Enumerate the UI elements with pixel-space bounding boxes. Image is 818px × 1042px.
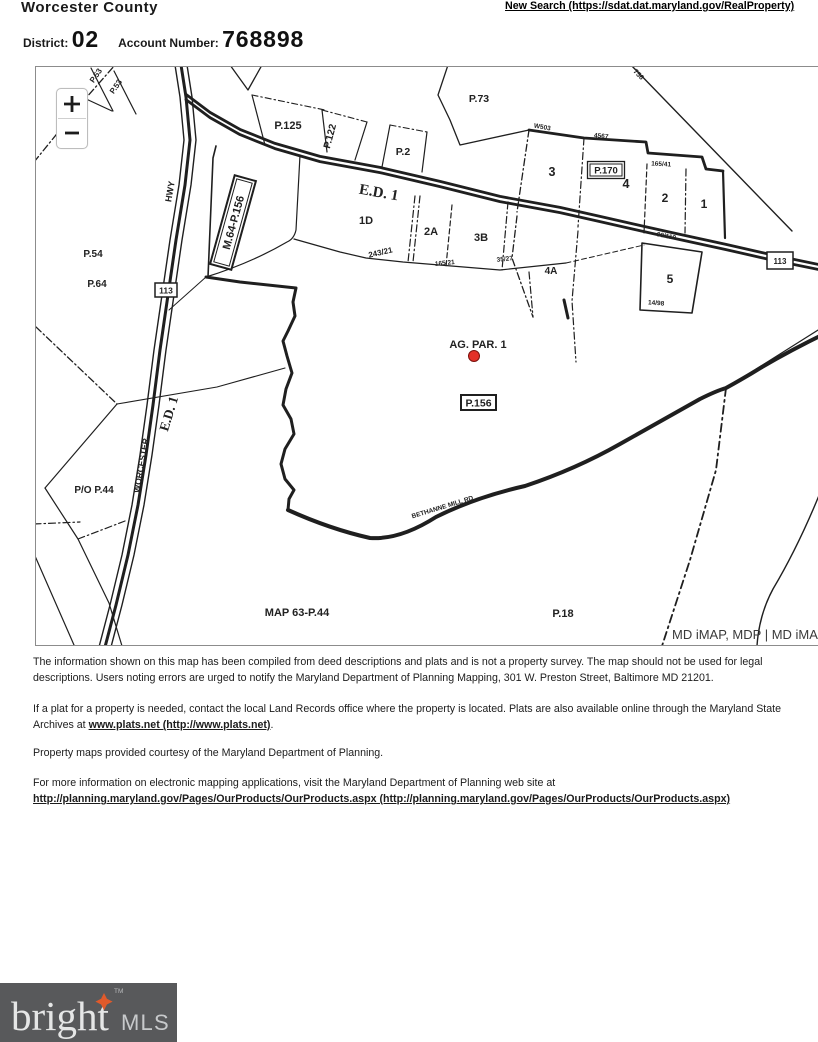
svg-text:113: 113 [774,257,787,266]
svg-text:BETHANNE MILL RD: BETHANNE MILL RD [411,495,475,521]
svg-text:P.18: P.18 [552,608,573,620]
svg-text:P.125: P.125 [274,120,301,132]
svg-text:P.73: P.73 [469,93,489,105]
svg-text:2A: 2A [424,226,438,238]
svg-text:bright: bright [11,993,110,1039]
svg-text:P.170: P.170 [594,166,618,177]
svg-text:P/O P.44: P/O P.44 [74,485,114,496]
svg-text:HWY: HWY [163,180,176,202]
svg-text:5: 5 [667,272,674,286]
svg-text:P.2: P.2 [396,146,411,158]
svg-text:P.53: P.53 [88,67,105,84]
svg-text:AG. PAR. 1: AG. PAR. 1 [449,339,506,351]
svg-text:MD iMAP, MDP | MD iMAP, MDP: MD iMAP, MDP | MD iMAP, MDP [672,627,818,642]
svg-text:1: 1 [701,197,708,211]
svg-text:E.D. 1: E.D. 1 [358,182,400,205]
svg-text:113: 113 [159,286,173,296]
svg-text:P.122: P.122 [322,123,339,150]
svg-text:2: 2 [662,191,669,205]
svg-text:165/41: 165/41 [651,160,672,168]
svg-text:P.64: P.64 [87,279,107,290]
svg-text:243/21: 243/21 [368,245,394,259]
svg-text:P.54: P.54 [83,249,103,260]
svg-text:MLS: MLS [121,1010,170,1035]
svg-text:756: 756 [632,68,645,81]
svg-text:35/27: 35/27 [496,255,513,264]
svg-text:4A: 4A [545,266,558,277]
svg-text:14/98: 14/98 [648,299,665,307]
svg-text:3: 3 [549,165,556,179]
svg-text:TM: TM [114,988,123,995]
svg-text:P.156: P.156 [465,398,491,410]
svg-text:3B: 3B [474,232,488,244]
svg-text:4: 4 [623,177,630,191]
svg-text:1D: 1D [359,215,373,227]
svg-text:MAP 63-P.44: MAP 63-P.44 [265,607,330,619]
